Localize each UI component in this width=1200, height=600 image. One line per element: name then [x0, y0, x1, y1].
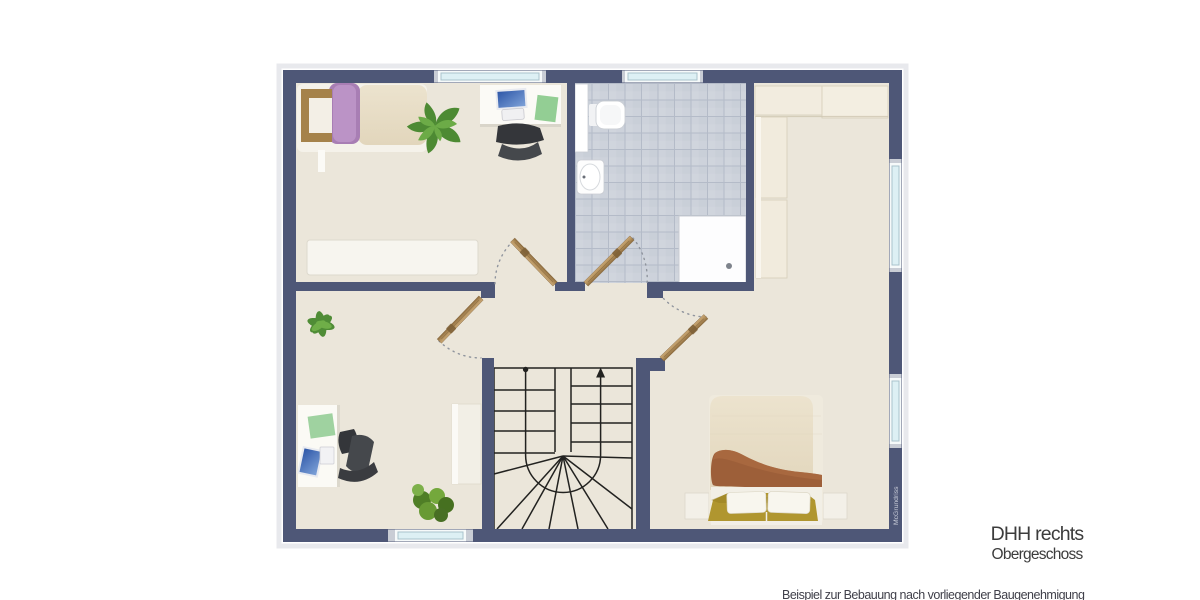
- svg-text:McGrundriss: McGrundriss: [893, 486, 900, 525]
